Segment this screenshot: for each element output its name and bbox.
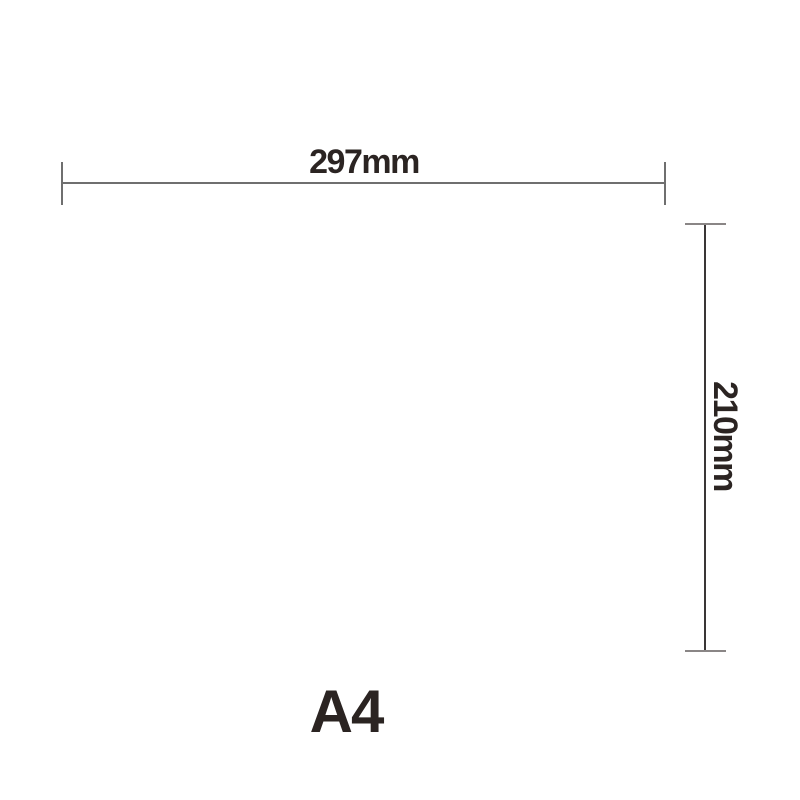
height-dimension-label: 210mm	[708, 381, 742, 491]
paper-size-diagram: 297mm 210mm A4	[0, 0, 800, 800]
width-dimension-label: 297mm	[309, 145, 419, 179]
height-dimension-top-tick	[685, 223, 726, 225]
width-dimension-right-tick	[664, 162, 666, 205]
width-dimension-line	[62, 182, 666, 184]
height-dimension-bottom-tick	[685, 650, 726, 652]
paper-size-caption: A4	[310, 682, 383, 742]
width-dimension-left-tick	[61, 162, 63, 205]
